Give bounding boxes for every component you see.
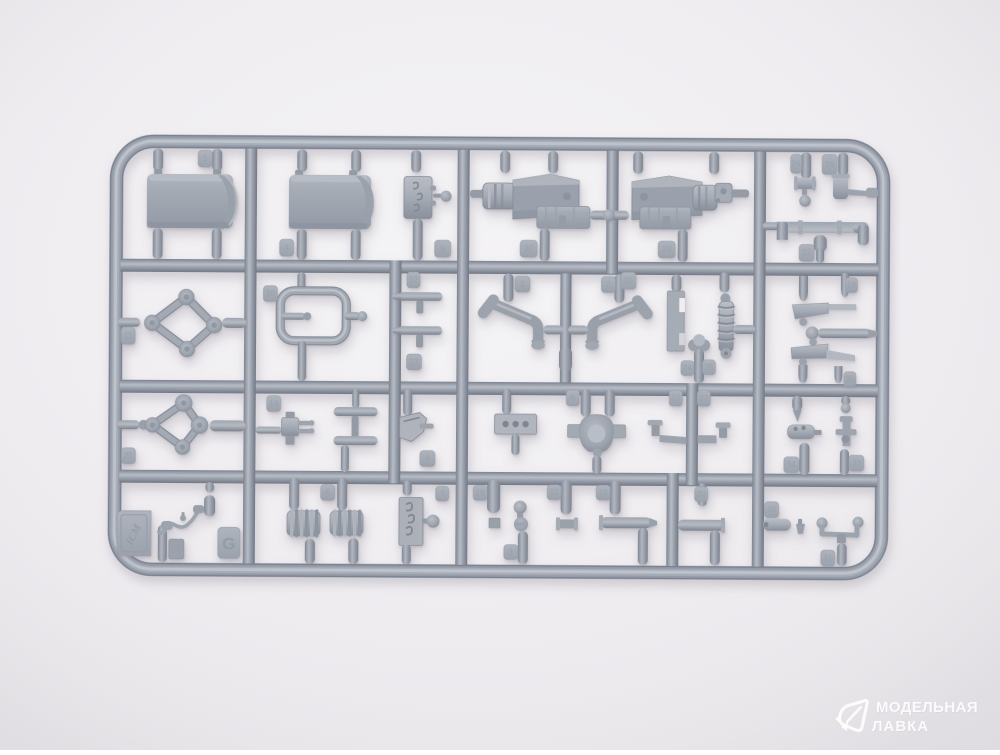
svg-text:ЛАВКА: ЛАВКА — [872, 718, 929, 735]
svg-text:МОДЕЛЬНАЯ: МОДЕЛЬНАЯ — [876, 699, 978, 716]
